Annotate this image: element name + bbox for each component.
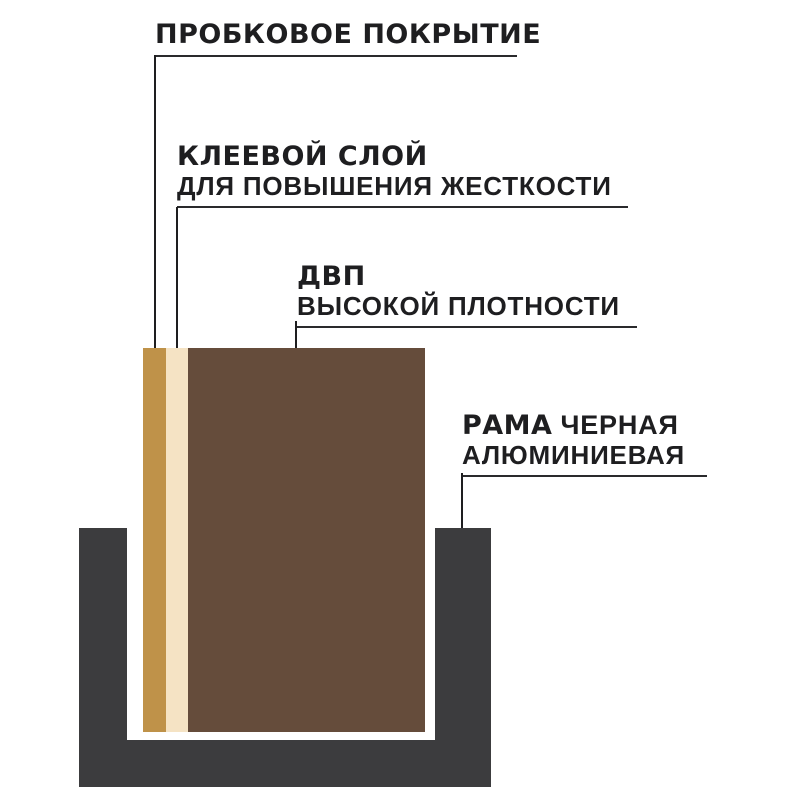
glue-leader-line — [176, 207, 178, 348]
frame-label-title-rest: ЧЕРНАЯ — [560, 410, 678, 440]
glue-label: КЛЕЕВОЙ СЛОЙ ДЛЯ ПОВЫШЕНИЯ ЖЕСТКОСТИ — [177, 142, 628, 208]
cork-leader-line — [154, 55, 156, 348]
frame-bottom-bar — [79, 740, 491, 787]
hdf-label: ДВП ВЫСОКОЙ ПЛОТНОСТИ — [297, 262, 637, 328]
hdf-label-subtitle: ВЫСОКОЙ ПЛОТНОСТИ — [297, 292, 637, 321]
hdf-label-title: ДВП — [297, 262, 637, 292]
glue-label-title: КЛЕЕВОЙ СЛОЙ — [177, 142, 628, 172]
glue-layer — [166, 348, 188, 732]
hdf-layer — [188, 348, 425, 732]
frame-label-subtitle: АЛЮМИНИЕВАЯ — [462, 441, 707, 470]
hdf-leader-line — [295, 321, 297, 348]
cork-layer — [143, 348, 166, 732]
frame-leader-line — [461, 473, 463, 528]
frame-label-title: РАМАЧЕРНАЯ — [462, 410, 707, 441]
glue-label-subtitle: ДЛЯ ПОВЫШЕНИЯ ЖЕСТКОСТИ — [177, 172, 628, 201]
cork-label-title: ПРОБКОВОЕ ПОКРЫТИЕ — [155, 20, 517, 50]
frame-label: РАМАЧЕРНАЯ АЛЮМИНИЕВАЯ — [462, 410, 707, 477]
cork-label: ПРОБКОВОЕ ПОКРЫТИЕ — [155, 20, 517, 57]
cork-board-layers-diagram: ПРОБКОВОЕ ПОКРЫТИЕ КЛЕЕВОЙ СЛОЙ ДЛЯ ПОВЫ… — [0, 0, 800, 800]
frame-label-title-bold: РАМА — [462, 410, 552, 441]
